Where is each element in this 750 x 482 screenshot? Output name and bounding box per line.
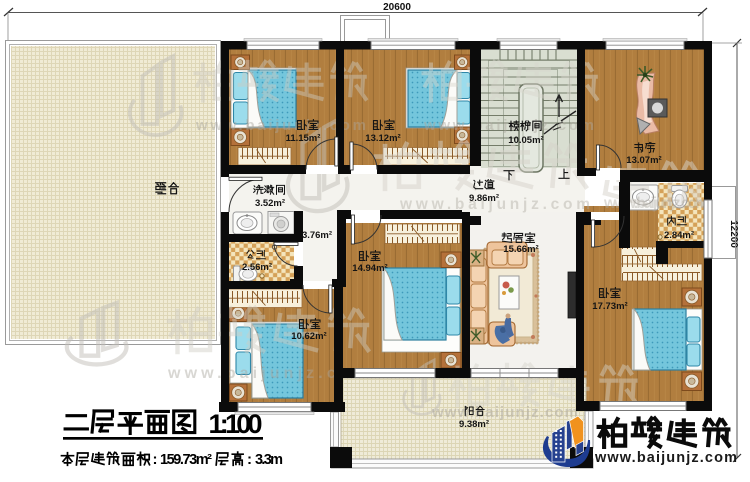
svg-text:13.12m²: 13.12m² (365, 133, 400, 144)
svg-text:11.15m²: 11.15m² (286, 133, 321, 144)
svg-text:2.84m²: 2.84m² (664, 230, 694, 241)
svg-text:www.baijunjz.com: www.baijunjz.com (603, 195, 709, 212)
svg-text:20600: 20600 (383, 2, 411, 13)
svg-text:10.62m²: 10.62m² (291, 331, 326, 342)
svg-text:10.05m²: 10.05m² (508, 135, 543, 146)
svg-text:www.baijunjz.com: www.baijunjz.com (431, 404, 578, 421)
svg-text:13.07m²: 13.07m² (626, 155, 661, 166)
svg-text:15.66m²: 15.66m² (503, 244, 538, 255)
svg-text:12200: 12200 (728, 220, 739, 248)
svg-text:3.3m: 3.3m (255, 452, 283, 468)
svg-text:14.94m²: 14.94m² (352, 263, 387, 274)
svg-text:1:100: 1:100 (209, 409, 263, 439)
svg-text:3.76m²: 3.76m² (302, 230, 332, 241)
svg-text::: : (247, 451, 252, 468)
svg-text:9.86m²: 9.86m² (469, 193, 499, 204)
svg-text::: : (153, 451, 158, 468)
svg-text:3.52m²: 3.52m² (255, 198, 285, 209)
svg-text:9.38m²: 9.38m² (459, 419, 489, 430)
svg-text:www.baijunjz.com: www.baijunjz.com (594, 450, 737, 466)
svg-text:159.73m²: 159.73m² (160, 452, 212, 468)
svg-text:2.56m²: 2.56m² (242, 262, 272, 273)
svg-text:17.73m²: 17.73m² (592, 301, 627, 312)
